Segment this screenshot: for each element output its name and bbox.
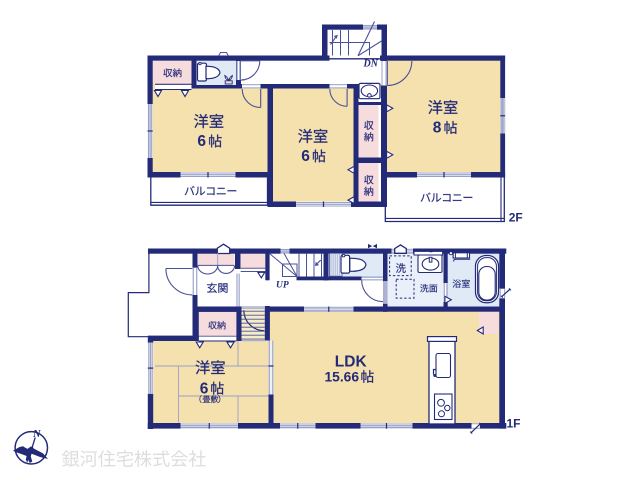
svg-text:DN: DN — [363, 58, 379, 69]
svg-text:6: 6 — [200, 380, 209, 397]
svg-text:2F: 2F — [509, 211, 523, 225]
svg-text:8: 8 — [433, 120, 442, 137]
svg-text:15.66: 15.66 — [325, 370, 360, 385]
svg-text:LDK: LDK — [335, 353, 368, 370]
svg-text:1F: 1F — [507, 417, 521, 431]
svg-text:UP: UP — [276, 281, 289, 291]
svg-text:6: 6 — [301, 148, 310, 165]
svg-text:N: N — [32, 429, 41, 440]
svg-text:6: 6 — [197, 133, 206, 150]
